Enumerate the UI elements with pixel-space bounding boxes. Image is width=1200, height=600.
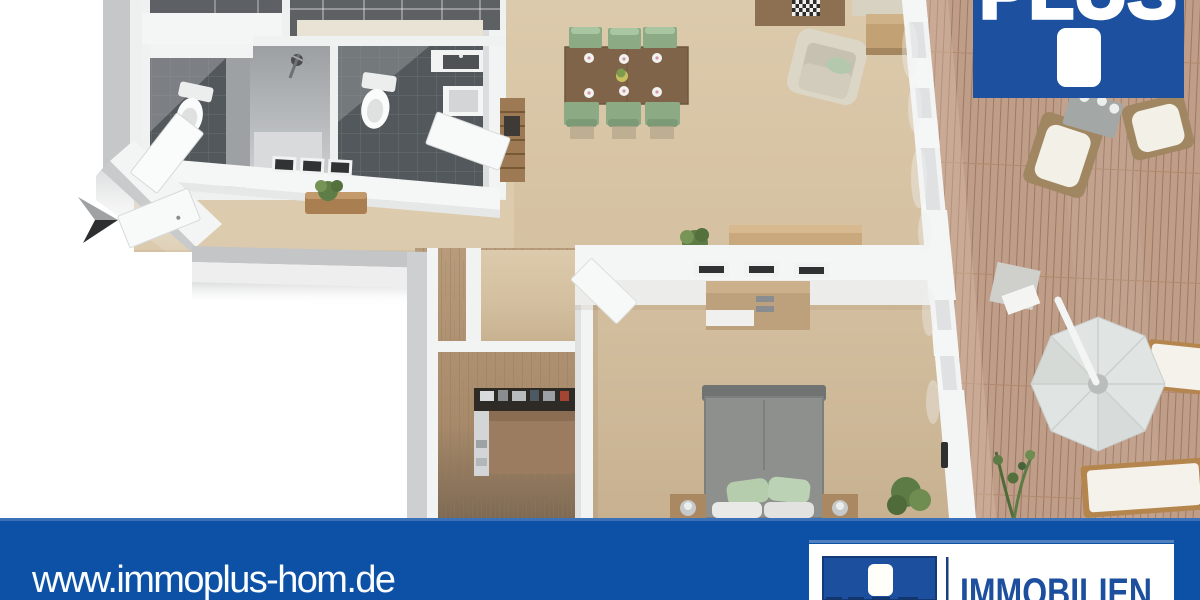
svg-text:IMMOBILIEN: IMMOBILIEN <box>960 570 1152 600</box>
svg-text:www.immoplus-hom.de: www.immoplus-hom.de <box>31 559 395 600</box>
